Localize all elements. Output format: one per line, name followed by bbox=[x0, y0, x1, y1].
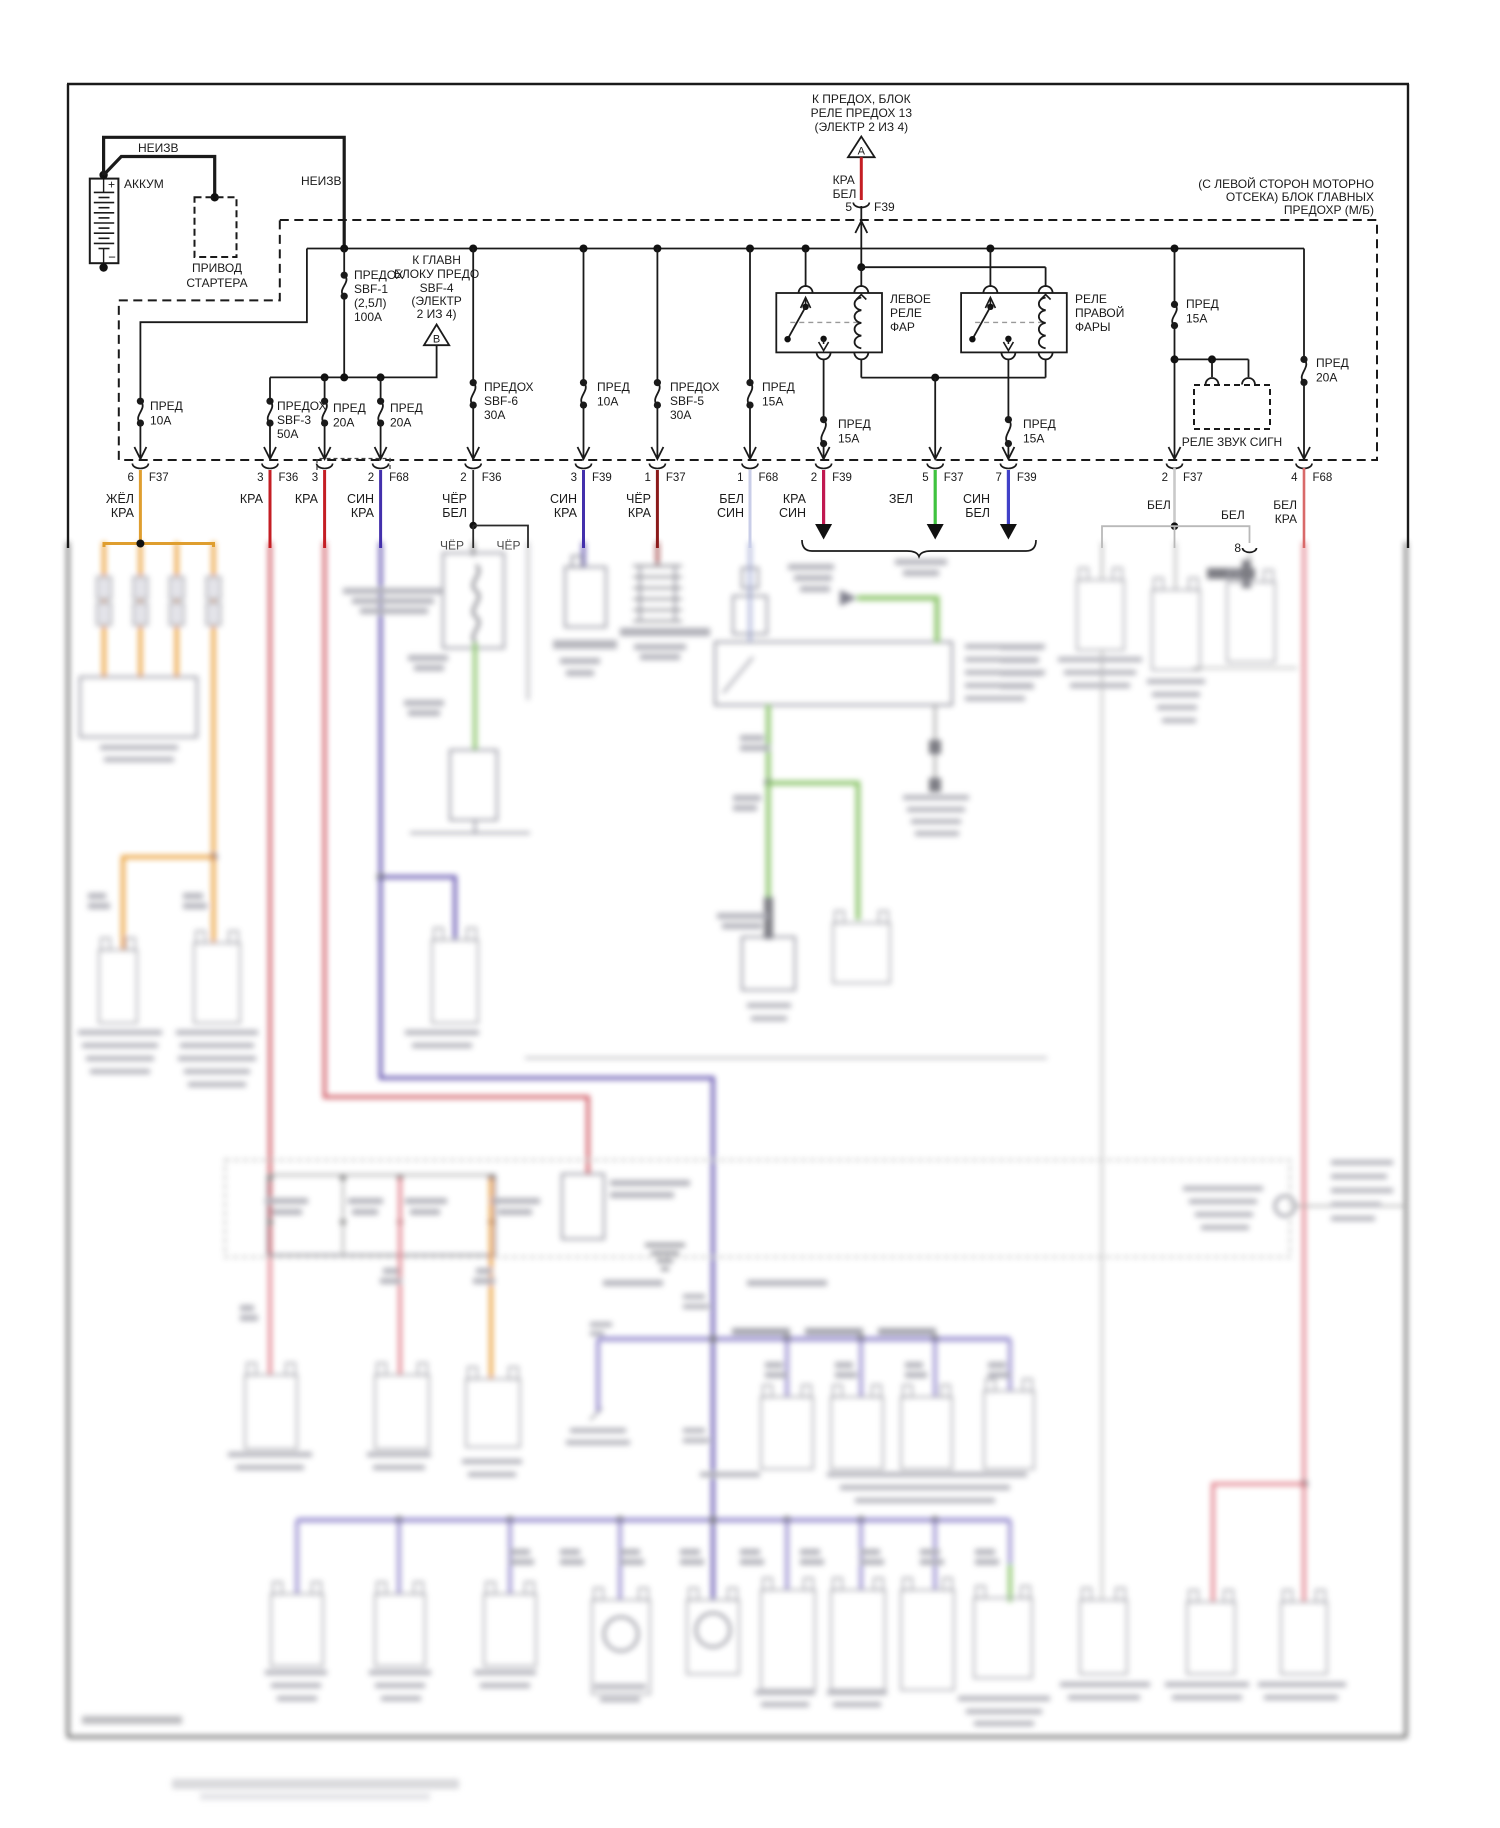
svg-text:К ПРЕДОХ, БЛОК: К ПРЕДОХ, БЛОК bbox=[812, 92, 911, 106]
svg-text:SBF-3: SBF-3 bbox=[277, 413, 311, 427]
svg-text:F39: F39 bbox=[832, 472, 852, 484]
svg-text:3: 3 bbox=[571, 472, 577, 484]
svg-text:F36: F36 bbox=[482, 472, 502, 484]
svg-text:ПРЕД: ПРЕД bbox=[1186, 297, 1219, 311]
svg-text:СИН: СИН bbox=[779, 506, 806, 520]
svg-text:ПРЕДОХ: ПРЕДОХ bbox=[670, 380, 720, 394]
svg-text:ПРЕД: ПРЕД bbox=[390, 401, 423, 415]
svg-text:10А: 10А bbox=[150, 414, 171, 428]
svg-text:ПРЕД: ПРЕД bbox=[838, 417, 871, 431]
svg-text:КРА: КРА bbox=[111, 506, 135, 520]
svg-text:БЕЛ: БЕЛ bbox=[833, 187, 857, 201]
svg-text:F37: F37 bbox=[149, 472, 169, 484]
svg-text:F68: F68 bbox=[389, 472, 409, 484]
svg-text:6: 6 bbox=[127, 472, 133, 484]
svg-text:СИН: СИН bbox=[347, 492, 374, 506]
svg-text:СИН: СИН bbox=[963, 492, 990, 506]
svg-text:100А: 100А bbox=[354, 310, 382, 324]
svg-text:2: 2 bbox=[460, 472, 466, 484]
svg-text:15А: 15А bbox=[1186, 312, 1207, 326]
svg-text:5: 5 bbox=[922, 472, 928, 484]
svg-text:ЛЕВОЕ: ЛЕВОЕ bbox=[890, 292, 931, 306]
svg-text:КРА: КРА bbox=[1275, 512, 1297, 526]
svg-text:8: 8 bbox=[1234, 541, 1241, 555]
svg-text:(ЭЛЕКТР 2 ИЗ 4): (ЭЛЕКТР 2 ИЗ 4) bbox=[814, 120, 908, 134]
svg-text:ПРЕД: ПРЕД bbox=[762, 380, 795, 394]
svg-text:SBF-4: SBF-4 bbox=[420, 281, 454, 295]
svg-text:ПРЕД: ПРЕД bbox=[597, 380, 630, 394]
svg-text:15А: 15А bbox=[1023, 432, 1044, 446]
svg-text:РЕЛЕ: РЕЛЕ bbox=[1075, 292, 1107, 306]
svg-text:ПРЕДОХР (М/Б): ПРЕДОХР (М/Б) bbox=[1284, 203, 1374, 217]
svg-text:2: 2 bbox=[1162, 472, 1168, 484]
svg-text:F37: F37 bbox=[1183, 472, 1203, 484]
svg-text:РЕЛЕ: РЕЛЕ bbox=[890, 306, 922, 320]
svg-text:КРА: КРА bbox=[351, 506, 375, 520]
svg-text:SBF-5: SBF-5 bbox=[670, 394, 704, 408]
svg-text:SBF-1: SBF-1 bbox=[354, 282, 388, 296]
svg-text:ФАР: ФАР bbox=[890, 320, 915, 334]
svg-text:ПРЕД: ПРЕД bbox=[1023, 417, 1056, 431]
svg-text:4: 4 bbox=[1291, 472, 1298, 484]
svg-text:А: А bbox=[858, 146, 866, 158]
svg-text:БЕЛ: БЕЛ bbox=[1273, 498, 1297, 512]
svg-text:10А: 10А bbox=[597, 395, 618, 409]
svg-text:F39: F39 bbox=[1017, 472, 1037, 484]
svg-text:ПРЕД: ПРЕД bbox=[333, 401, 366, 415]
svg-text:F68: F68 bbox=[1313, 472, 1333, 484]
svg-text:СИН: СИН bbox=[550, 492, 577, 506]
svg-text:(ЭЛЕКТР: (ЭЛЕКТР bbox=[411, 294, 461, 308]
svg-text:ЖЁЛ: ЖЁЛ bbox=[106, 492, 134, 506]
svg-text:КРА: КРА bbox=[628, 506, 652, 520]
svg-text:ПРЕД: ПРЕД bbox=[150, 399, 183, 413]
svg-text:F68: F68 bbox=[759, 472, 779, 484]
svg-text:СИН: СИН bbox=[717, 506, 744, 520]
svg-text:5: 5 bbox=[845, 200, 852, 214]
svg-text:ЧЁР: ЧЁР bbox=[626, 492, 651, 506]
svg-text:20А: 20А bbox=[390, 416, 411, 430]
svg-text:ПРИВОД: ПРИВОД bbox=[192, 261, 242, 275]
svg-text:КРА: КРА bbox=[554, 506, 578, 520]
svg-text:В: В bbox=[433, 334, 440, 346]
svg-text:7: 7 bbox=[995, 472, 1001, 484]
svg-text:КРА: КРА bbox=[295, 492, 319, 506]
svg-text:50А: 50А bbox=[277, 427, 298, 441]
svg-text:АККУМ: АККУМ bbox=[124, 177, 164, 191]
svg-text:НЕИЗВ: НЕИЗВ bbox=[301, 174, 342, 188]
svg-text:СТАРТЕРА: СТАРТЕРА bbox=[186, 276, 247, 290]
svg-text:20А: 20А bbox=[333, 416, 354, 430]
svg-text:КРА: КРА bbox=[240, 492, 264, 506]
svg-text:ЗЕЛ: ЗЕЛ bbox=[889, 492, 913, 506]
svg-text:20А: 20А bbox=[1316, 371, 1337, 385]
svg-text:F39: F39 bbox=[592, 472, 612, 484]
svg-text:ЧЁР: ЧЁР bbox=[496, 539, 520, 553]
svg-text:30А: 30А bbox=[484, 408, 505, 422]
svg-text:+: + bbox=[108, 178, 115, 192]
svg-text:КРА: КРА bbox=[833, 173, 855, 187]
svg-text:К ГЛАВН: К ГЛАВН bbox=[412, 253, 461, 267]
svg-text:2: 2 bbox=[811, 472, 817, 484]
svg-text:ФАРЫ: ФАРЫ bbox=[1075, 320, 1111, 334]
svg-text:1: 1 bbox=[644, 472, 650, 484]
svg-text:КРА: КРА bbox=[783, 492, 807, 506]
svg-text:2: 2 bbox=[368, 472, 374, 484]
svg-text:3: 3 bbox=[312, 472, 318, 484]
svg-text:F39: F39 bbox=[874, 200, 895, 214]
svg-text:F36: F36 bbox=[279, 472, 299, 484]
svg-text:(С ЛЕВОЙ СТОРОН МОТОРНО: (С ЛЕВОЙ СТОРОН МОТОРНО bbox=[1198, 176, 1374, 191]
svg-text:1: 1 bbox=[737, 472, 743, 484]
svg-text:F37: F37 bbox=[944, 472, 964, 484]
svg-text:F37: F37 bbox=[666, 472, 686, 484]
svg-text:ЧЁР: ЧЁР bbox=[442, 492, 467, 506]
svg-text:ПРАВОЙ: ПРАВОЙ bbox=[1075, 305, 1124, 320]
svg-text:ОТСЕКА) БЛОК ГЛАВНЫХ: ОТСЕКА) БЛОК ГЛАВНЫХ bbox=[1226, 190, 1374, 204]
svg-text:ПРЕД: ПРЕД bbox=[1316, 356, 1349, 370]
svg-text:SBF-6: SBF-6 bbox=[484, 394, 518, 408]
svg-text:РЕЛЕ ЗВУК СИГН: РЕЛЕ ЗВУК СИГН bbox=[1182, 435, 1282, 449]
svg-text:БЕЛ: БЕЛ bbox=[1147, 498, 1171, 512]
svg-text:БЕЛ: БЕЛ bbox=[965, 506, 990, 520]
svg-text:ЧЁР: ЧЁР bbox=[440, 539, 464, 553]
svg-text:БЕЛ: БЕЛ bbox=[719, 492, 744, 506]
svg-text:2 ИЗ 4): 2 ИЗ 4) bbox=[417, 307, 457, 321]
svg-text:РЕЛЕ ПРЕДОХ 13: РЕЛЕ ПРЕДОХ 13 bbox=[811, 106, 913, 120]
svg-text:БЛОКУ ПРЕДО: БЛОКУ ПРЕДО bbox=[394, 267, 479, 281]
svg-text:3: 3 bbox=[257, 472, 263, 484]
svg-text:НЕИЗВ: НЕИЗВ bbox=[138, 141, 179, 155]
svg-text:30А: 30А bbox=[670, 408, 691, 422]
svg-text:БЕЛ: БЕЛ bbox=[1221, 508, 1245, 522]
svg-text:−: − bbox=[108, 250, 116, 265]
svg-text:(2,5Л): (2,5Л) bbox=[354, 296, 387, 310]
svg-text:БЕЛ: БЕЛ bbox=[442, 506, 467, 520]
svg-text:15А: 15А bbox=[762, 395, 783, 409]
svg-text:ПРЕДОХ: ПРЕДОХ bbox=[277, 399, 327, 413]
svg-text:ПРЕДОХ: ПРЕДОХ bbox=[484, 380, 534, 394]
svg-text:15А: 15А bbox=[838, 432, 859, 446]
